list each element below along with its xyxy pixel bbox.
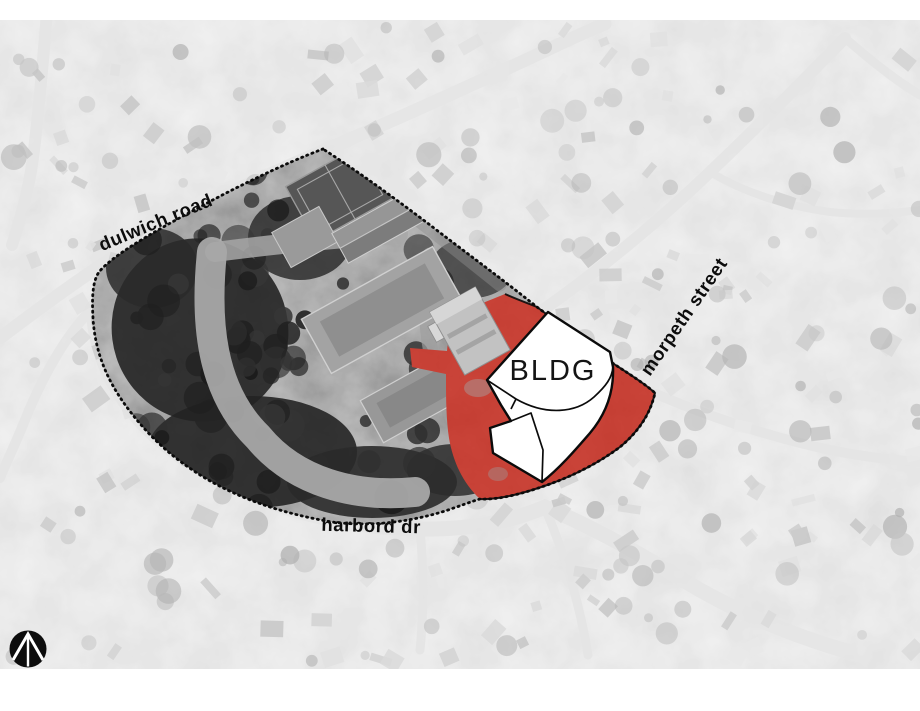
tree-blob	[209, 462, 227, 480]
tree-blob	[130, 312, 143, 325]
tree-blob	[238, 271, 257, 290]
building-label: BLDG	[510, 355, 597, 387]
tree-blob	[357, 450, 380, 473]
tree-blob	[147, 285, 180, 318]
tree-blob	[237, 358, 256, 377]
north-arrow-icon	[10, 631, 47, 668]
tree-blob	[267, 199, 289, 221]
tree-blob	[277, 321, 300, 344]
tree-blob	[337, 277, 349, 289]
tree-blob	[244, 193, 259, 208]
site-map-svg: BLDG dulwich road morpeth street harbord…	[0, 0, 920, 711]
tree-blob	[280, 356, 295, 371]
tree-blob	[158, 373, 172, 387]
tree-blob	[263, 367, 280, 384]
tree-blob	[162, 359, 176, 373]
label-harbord-dr: harbord dr	[321, 514, 421, 538]
tree-blob	[403, 447, 436, 480]
site-aerial-map: BLDG dulwich road morpeth street harbord…	[0, 0, 920, 711]
